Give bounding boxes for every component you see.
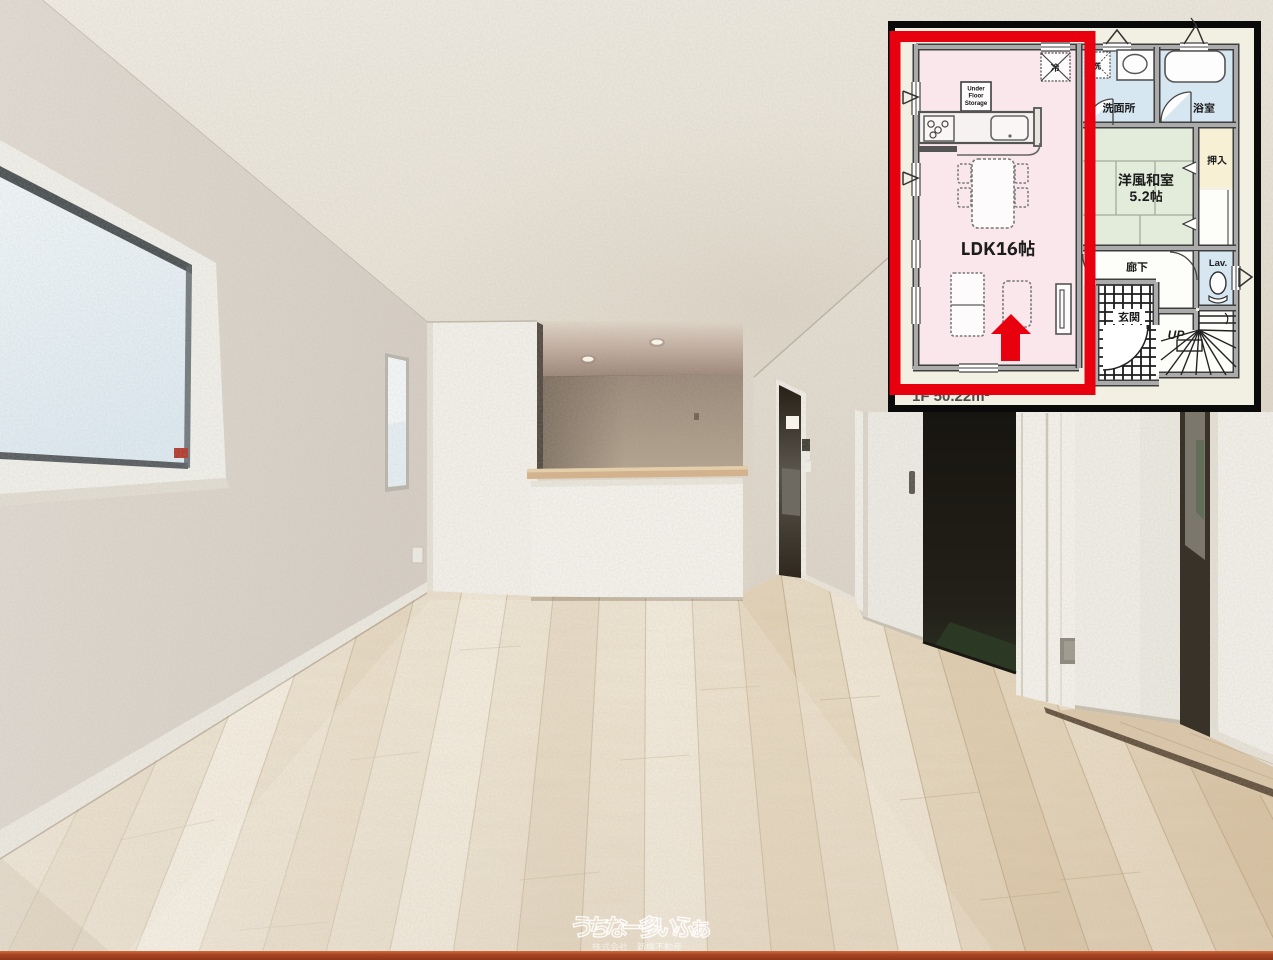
- svg-text:Floor: Floor: [969, 94, 985, 100]
- svg-text:Under: Under: [967, 87, 985, 93]
- svg-text:Lav.: Lav.: [1209, 258, 1227, 269]
- svg-text:Storage: Storage: [965, 101, 988, 107]
- svg-text:UP: UP: [1168, 328, 1186, 342]
